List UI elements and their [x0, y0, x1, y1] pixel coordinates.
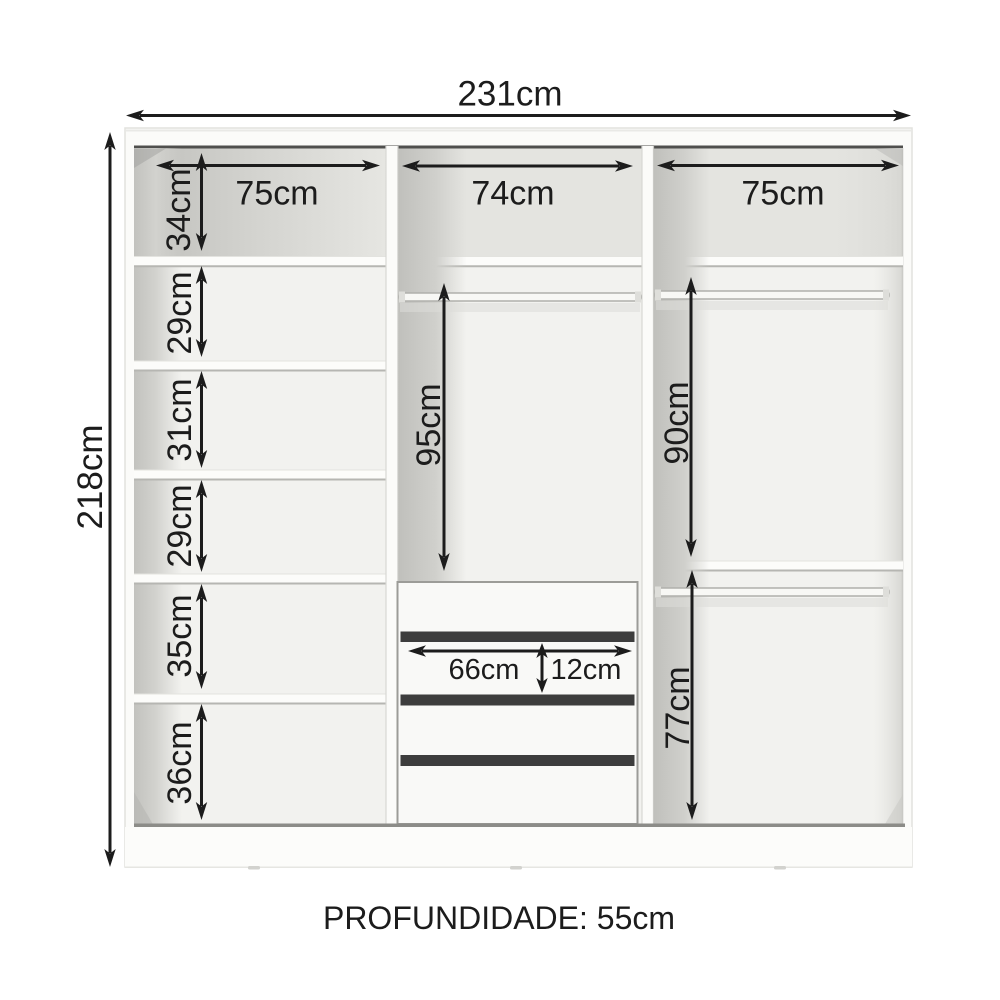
svg-text:75cm: 75cm: [741, 175, 824, 213]
svg-text:218cm: 218cm: [71, 424, 110, 529]
svg-text:74cm: 74cm: [471, 175, 554, 213]
svg-text:75cm: 75cm: [235, 175, 318, 213]
svg-text:231cm: 231cm: [457, 75, 562, 114]
svg-text:36cm: 36cm: [161, 721, 199, 804]
svg-text:31cm: 31cm: [161, 378, 199, 461]
svg-text:95cm: 95cm: [410, 383, 448, 466]
svg-text:90cm: 90cm: [658, 381, 696, 464]
svg-text:34cm: 34cm: [160, 168, 198, 251]
svg-text:29cm: 29cm: [161, 484, 199, 567]
svg-text:12cm: 12cm: [551, 654, 622, 686]
svg-text:29cm: 29cm: [161, 271, 199, 354]
svg-text:PROFUNDIDADE: 55cm: PROFUNDIDADE: 55cm: [323, 900, 675, 936]
svg-text:66cm: 66cm: [449, 654, 520, 686]
svg-text:77cm: 77cm: [659, 666, 697, 749]
svg-text:35cm: 35cm: [161, 594, 199, 677]
